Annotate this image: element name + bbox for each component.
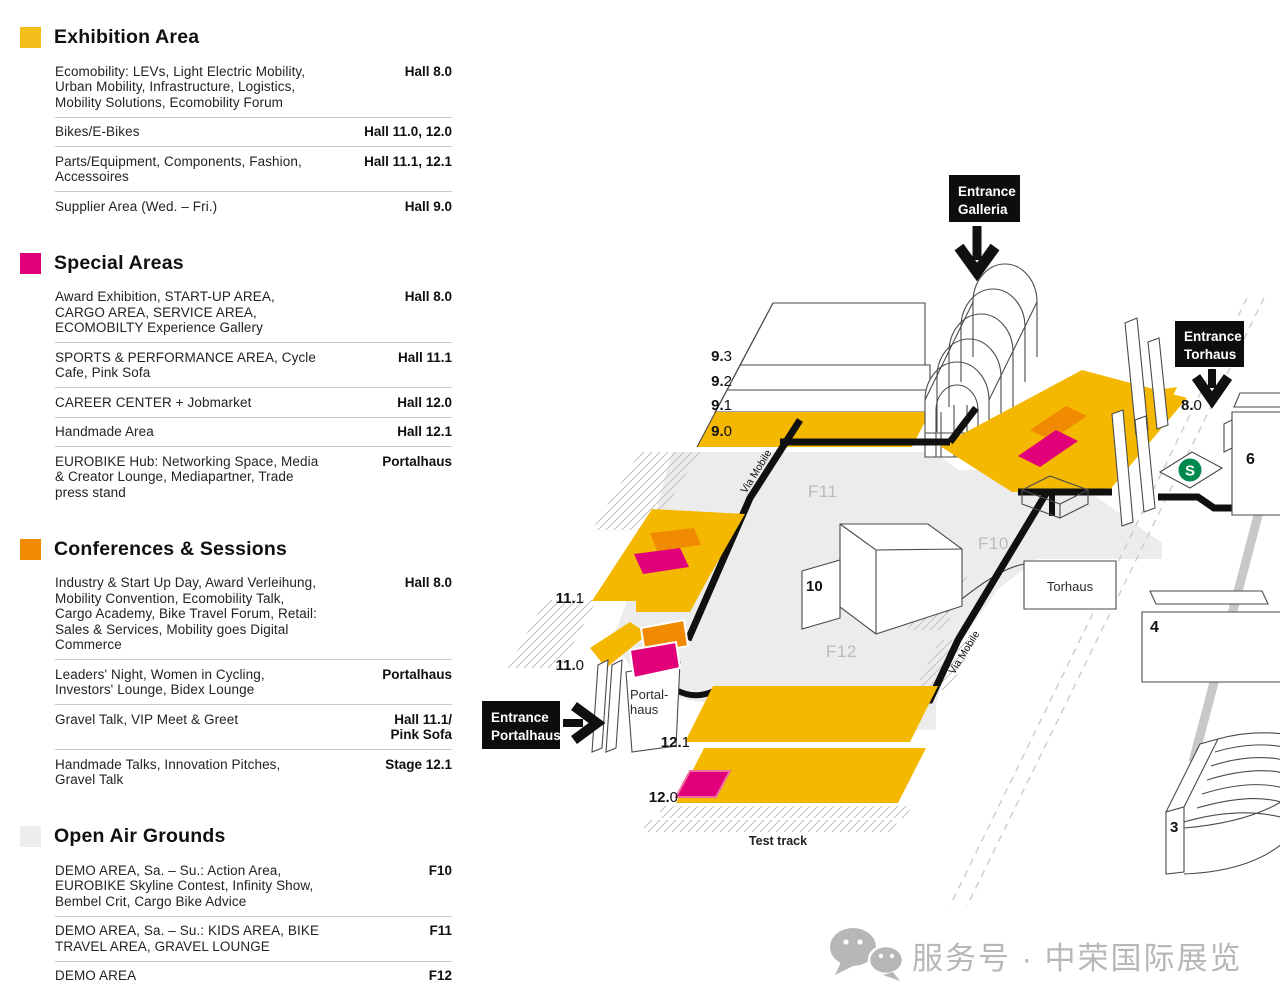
svg-text:Galleria: Galleria (958, 202, 1008, 217)
svg-text:8.0: 8.0 (1181, 397, 1202, 414)
arrow-down-icon (959, 226, 995, 272)
hall-12-buildings (676, 686, 938, 803)
hall-4-building: 4 (1142, 591, 1280, 682)
svg-text:10: 10 (806, 578, 823, 595)
svg-text:F11: F11 (808, 482, 838, 501)
svg-text:9.2: 9.2 (711, 373, 732, 390)
svg-text:Entrance: Entrance (491, 710, 549, 725)
svg-text:9.1: 9.1 (711, 397, 732, 414)
svg-text:3: 3 (1170, 819, 1178, 836)
svg-text:9.3: 9.3 (711, 348, 732, 365)
entrance-portalhaus: Entrance Portalhaus (482, 701, 597, 749)
watermark: 服务号 · 中荣国际展览 (830, 928, 1243, 981)
svg-text:11.1: 11.1 (556, 590, 584, 607)
test-track: Test track (642, 806, 912, 848)
hall-12-1-roof (685, 686, 938, 742)
svg-text:haus: haus (630, 702, 659, 717)
hall-6-building: 6 (1224, 393, 1280, 515)
sbahn-station: S (1160, 452, 1222, 488)
svg-text:Portalhaus: Portalhaus (491, 728, 561, 743)
entrance-galleria: Entrance Galleria (949, 175, 1020, 272)
entrance-torhaus: Entrance Torhaus (1175, 321, 1244, 400)
svg-text:6: 6 (1246, 451, 1255, 468)
site-map: S 6 4 Torhaus 10 3 (0, 0, 1280, 1005)
svg-text:F10: F10 (978, 534, 1009, 553)
torhaus-building: Torhaus (1024, 561, 1116, 609)
svg-text:F12: F12 (826, 642, 857, 661)
svg-text:12.1: 12.1 (661, 734, 690, 751)
svg-text:Portal-: Portal- (630, 687, 668, 702)
svg-text:11.0: 11.0 (556, 657, 584, 674)
svg-text:Test track: Test track (749, 834, 807, 848)
watermark-text: 服务号 · 中荣国际展览 (912, 941, 1243, 976)
svg-text:Torhaus: Torhaus (1047, 579, 1094, 594)
arrow-down-icon (1196, 369, 1228, 400)
svg-text:Entrance: Entrance (958, 184, 1016, 199)
arrow-right-icon (563, 706, 597, 740)
hall-3-building: 3 (1166, 733, 1280, 874)
svg-text:4: 4 (1150, 619, 1159, 636)
svg-text:S: S (1185, 463, 1195, 480)
svg-text:12.0: 12.0 (649, 789, 678, 806)
svg-text:Entrance: Entrance (1184, 329, 1242, 344)
svg-text:9.0: 9.0 (711, 423, 732, 440)
wechat-icon (830, 928, 903, 981)
svg-text:Torhaus: Torhaus (1184, 347, 1236, 362)
